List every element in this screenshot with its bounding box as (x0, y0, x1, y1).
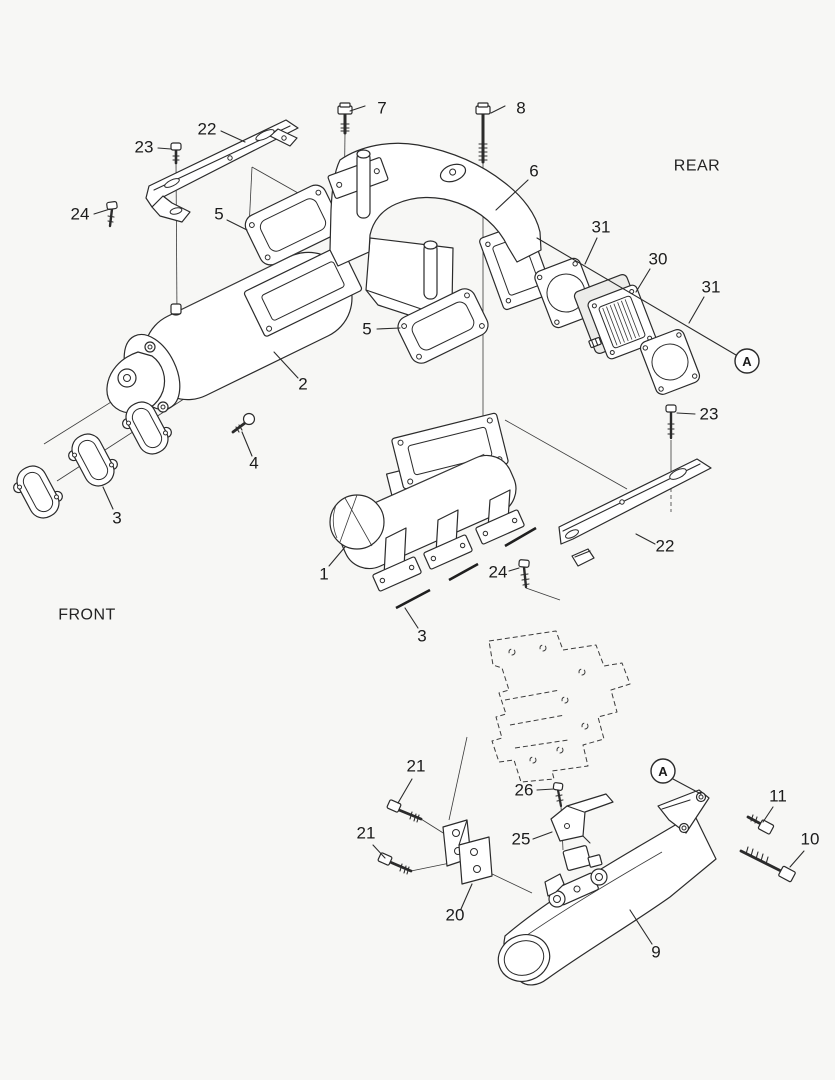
callout-c5b-leader (377, 328, 400, 329)
callout-c30-leader (636, 269, 650, 292)
callout-c1-number: 1 (319, 565, 328, 584)
callout-c22r-number: 22 (656, 537, 675, 556)
part-bolt-11 (748, 815, 774, 834)
callout-c31a-leader (585, 238, 597, 264)
callout-c24r-leader (509, 568, 519, 571)
part-screw-23-right (666, 405, 676, 438)
callout-c4-leader (242, 432, 252, 456)
callout-c10-number: 10 (801, 830, 820, 849)
view-marker-A-upper-letter: A (742, 354, 752, 369)
callout-c3a-leader (103, 487, 113, 509)
callout-c23r-number: 23 (700, 405, 719, 424)
part-bolt-21-upper (387, 799, 421, 822)
callout-c10-leader (790, 851, 804, 867)
part-ghost-bracket (489, 631, 630, 782)
view-marker-A-lower-letter: A (658, 764, 668, 779)
callout-c31b-leader (689, 297, 704, 323)
callout-c9-number: 9 (651, 943, 660, 962)
callout-c21a-leader (398, 779, 412, 803)
callout-c11-leader (763, 807, 773, 822)
part-intake-manifold-2 (107, 238, 366, 418)
part-bracket-stay-22-right (559, 459, 711, 566)
view-marker-A-lower-leader (673, 779, 701, 794)
callout-c31b-number: 31 (702, 278, 721, 297)
callout-c26-leader (537, 789, 554, 790)
callout-c22t-number: 22 (198, 120, 217, 139)
callout-c7-number: 7 (377, 99, 386, 118)
callout-c21b-leader (373, 845, 385, 858)
part-bolt-4 (233, 414, 255, 433)
callout-c23t-leader (158, 148, 171, 149)
part-screw-23-top (171, 143, 181, 163)
part-screw-24-right (519, 560, 530, 587)
part-screw-24-top (106, 201, 117, 226)
callout-c2-number: 2 (298, 375, 307, 394)
part-screw-26 (553, 782, 563, 806)
callout-c30-number: 30 (649, 250, 668, 269)
callout-c25-leader (533, 832, 552, 839)
callout-c25-number: 25 (512, 830, 531, 849)
callout-c11-number: 11 (769, 787, 787, 806)
callout-c24t-leader (94, 209, 110, 214)
callout-c1-leader (329, 547, 345, 566)
callout-c8-leader (491, 106, 505, 113)
callout-c31a-number: 31 (592, 218, 611, 237)
callout-c23t-number: 23 (135, 138, 154, 157)
part-port-gaskets-3 (8, 395, 178, 525)
part-bolt-8 (476, 103, 490, 162)
callout-c3b-leader (405, 608, 418, 628)
callout-c4-number: 4 (249, 454, 258, 473)
callout-c26-number: 26 (515, 781, 534, 800)
callout-c23r-leader (677, 413, 695, 414)
callout-c21a-number: 21 (407, 757, 426, 776)
exploded-diagram: 7862223245531303124323222413212126252011… (0, 0, 835, 1080)
callout-c21b-number: 21 (357, 824, 376, 843)
callout-c5t-leader (227, 220, 247, 230)
direction-label-rear: REAR (674, 158, 720, 175)
part-bracket-20 (443, 820, 492, 884)
part-manifold-6 (328, 143, 554, 322)
direction-label-front: FRONT (58, 607, 116, 624)
callout-c5b-number: 5 (362, 320, 371, 339)
part-pipe-bracket (658, 790, 709, 833)
callout-c22r-leader (636, 534, 655, 544)
callout-c20-number: 20 (446, 906, 465, 925)
callout-c3a-number: 3 (112, 509, 121, 528)
part-bolt-10 (741, 847, 796, 882)
callout-c5t-number: 5 (214, 205, 223, 224)
callout-c8-number: 8 (516, 99, 525, 118)
callout-c24t-number: 24 (71, 205, 90, 224)
callout-c24r-number: 24 (489, 563, 508, 582)
callout-c22t-leader (221, 131, 245, 142)
callout-c3b-number: 3 (417, 627, 426, 646)
callout-c6-number: 6 (529, 162, 538, 181)
part-bolt-7 (338, 103, 352, 133)
exploded-diagram-page: 7862223245531303124323222413212126252011… (0, 0, 835, 1080)
